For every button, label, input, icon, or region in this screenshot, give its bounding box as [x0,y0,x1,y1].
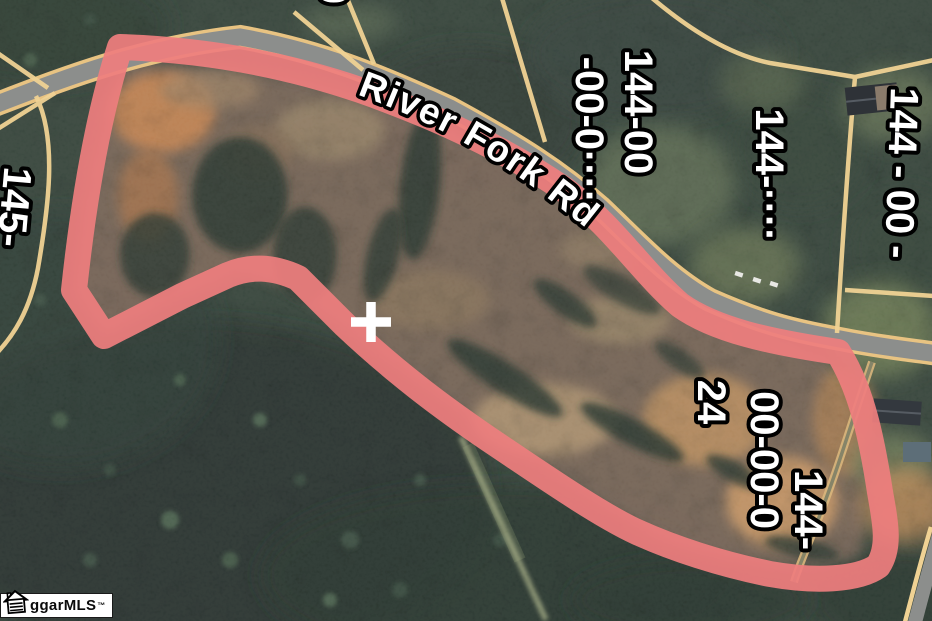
parcel-label: 144-···· [747,108,791,241]
parcel-label: 144-00 [616,50,660,175]
parcel-label: 145- [0,165,39,249]
mls-watermark: ggarMLS™ [0,593,113,618]
parcel-label: 00-00-0 [742,391,786,529]
house-logo-icon [3,586,29,616]
parcel-label: 144- [786,470,830,550]
parcel-label: -00-0···· [567,57,611,204]
watermark-trademark: ™ [97,601,105,610]
aerial-map-canvas[interactable]: River Fork Rd 145- 0 144-00 -00-0···· 14… [0,0,932,621]
aerial-imagery: River Fork Rd 145- 0 144-00 -00-0···· 14… [0,0,932,621]
watermark-brand: ggarMLS [30,598,96,613]
parcel-label: 0 [311,0,355,4]
house-roof [903,442,931,462]
parcel-label: 144 - 00 - [876,87,926,260]
parcel-label: 24 [689,380,733,425]
